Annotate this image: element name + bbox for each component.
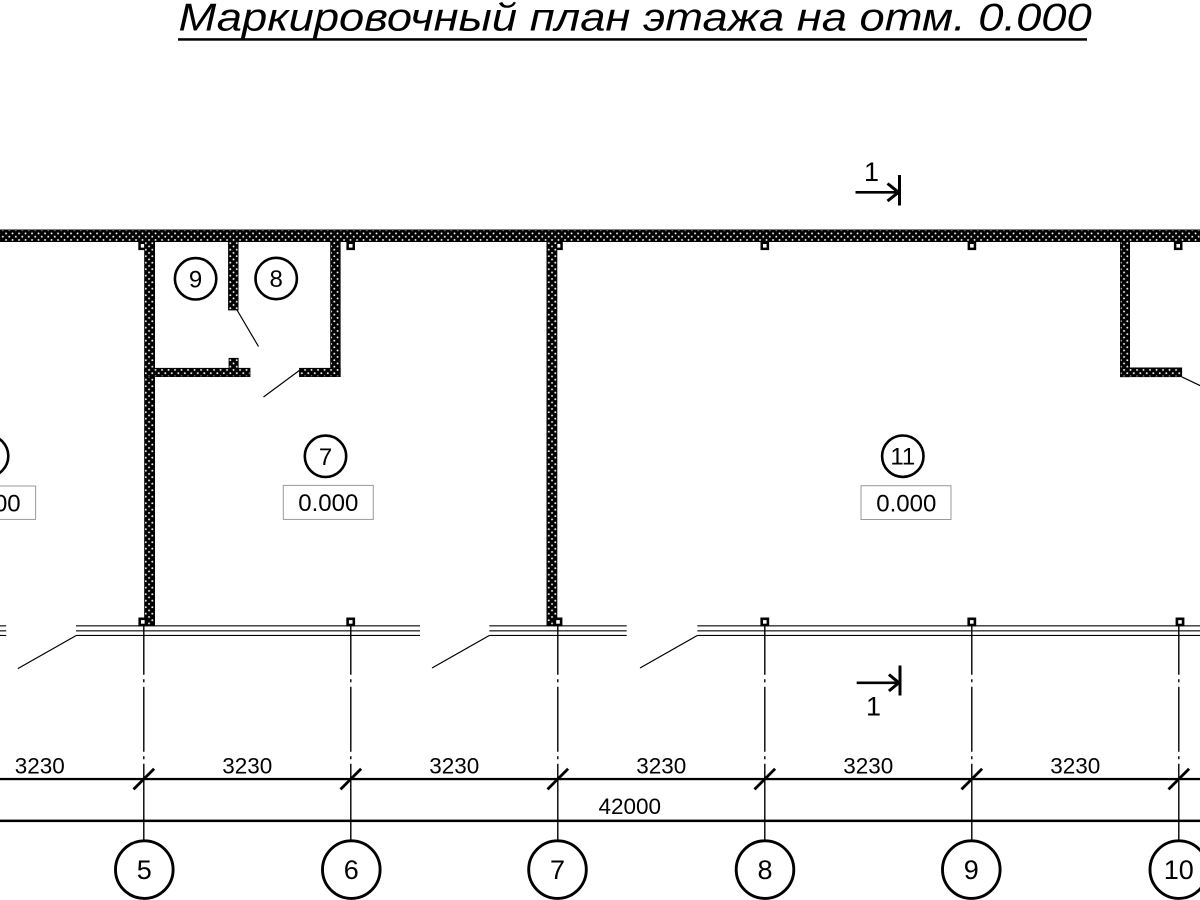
svg-text:0.000: 0.000 [0,491,21,518]
svg-text:3230: 3230 [1050,753,1100,778]
svg-text:10: 10 [1164,855,1194,885]
svg-text:7: 7 [550,855,565,885]
svg-text:11: 11 [890,444,915,471]
svg-text:1: 1 [864,157,879,187]
svg-text:8: 8 [757,855,772,885]
svg-text:3230: 3230 [222,753,272,778]
svg-text:6: 6 [344,855,359,885]
svg-text:1: 1 [866,692,881,722]
svg-text:5: 5 [137,855,152,885]
svg-text:42000: 42000 [599,794,662,819]
svg-text:3230: 3230 [636,753,686,778]
svg-text:9: 9 [189,266,202,293]
svg-text:3230: 3230 [429,753,479,778]
svg-text:3230: 3230 [15,753,65,778]
svg-text:3230: 3230 [843,753,893,778]
svg-text:0.000: 0.000 [876,490,936,517]
svg-text:8: 8 [270,266,283,293]
svg-text:9: 9 [964,855,979,885]
svg-text:7: 7 [319,444,332,471]
svg-text:0.000: 0.000 [298,490,358,517]
svg-text:Маркировочный план этажа на от: Маркировочный план этажа на отм. 0.000 [179,0,1093,39]
